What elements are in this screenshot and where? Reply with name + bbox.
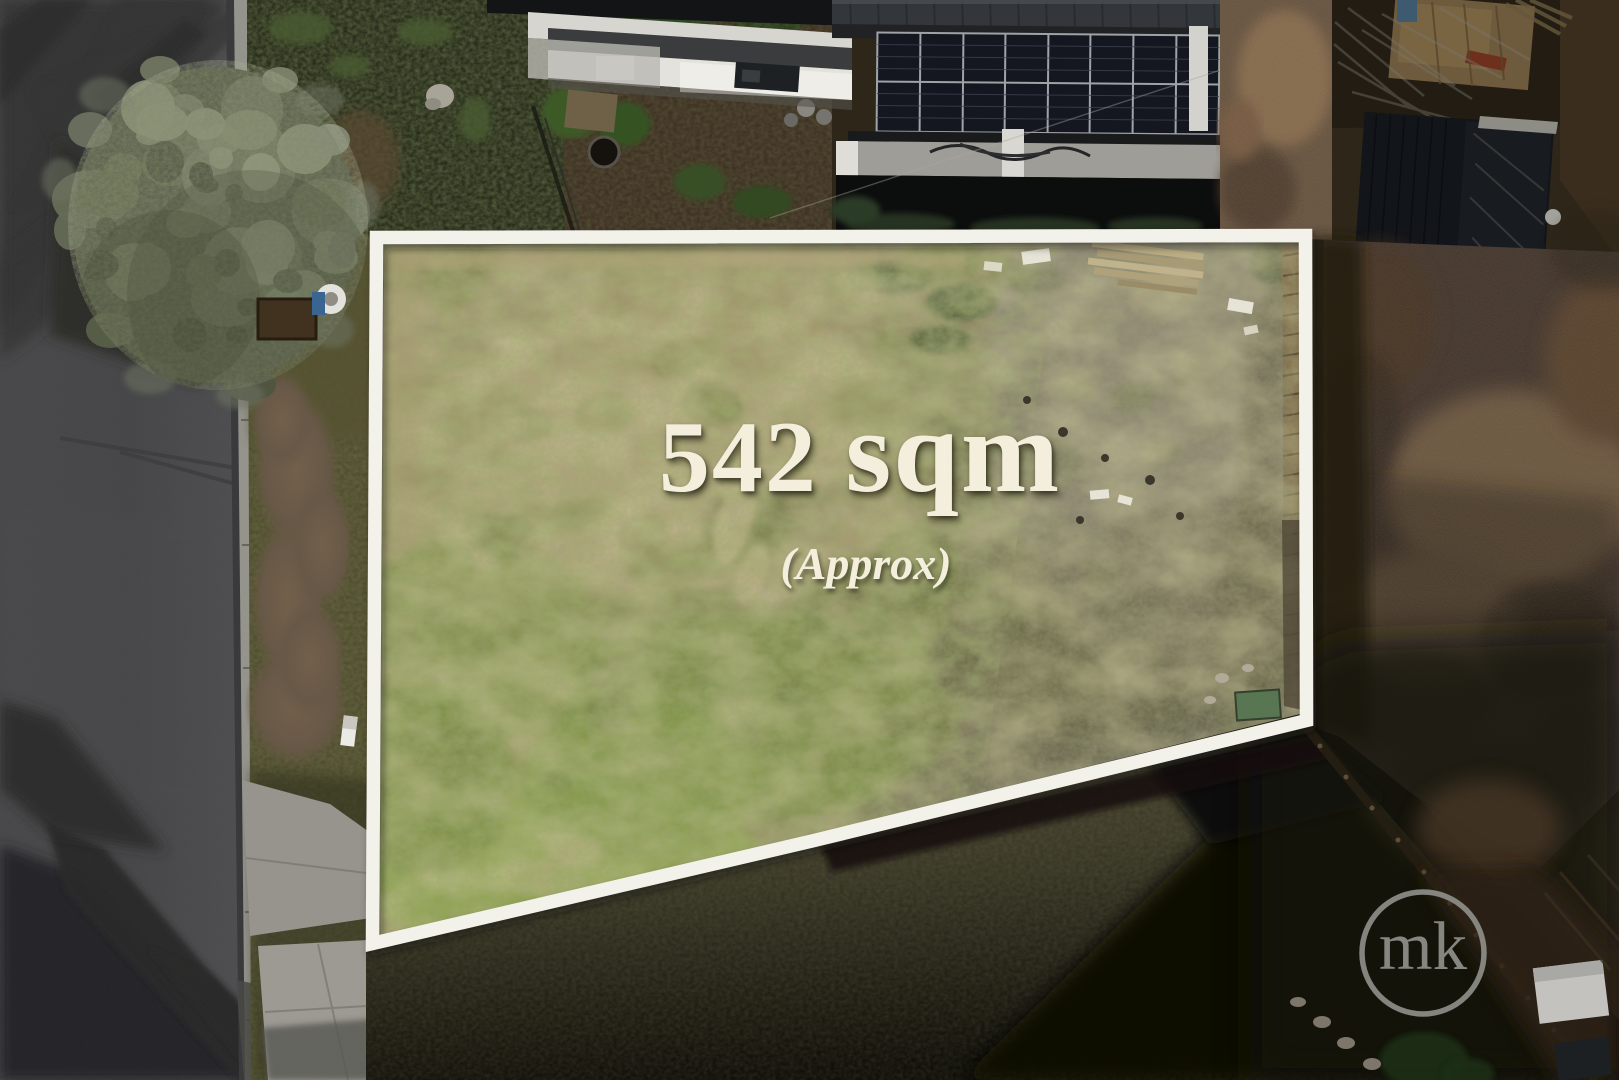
svg-text:542 sqm: 542 sqm [659,386,1061,517]
svg-text:mk: mk [1379,908,1468,984]
svg-text:(Approx): (Approx) [780,538,951,589]
